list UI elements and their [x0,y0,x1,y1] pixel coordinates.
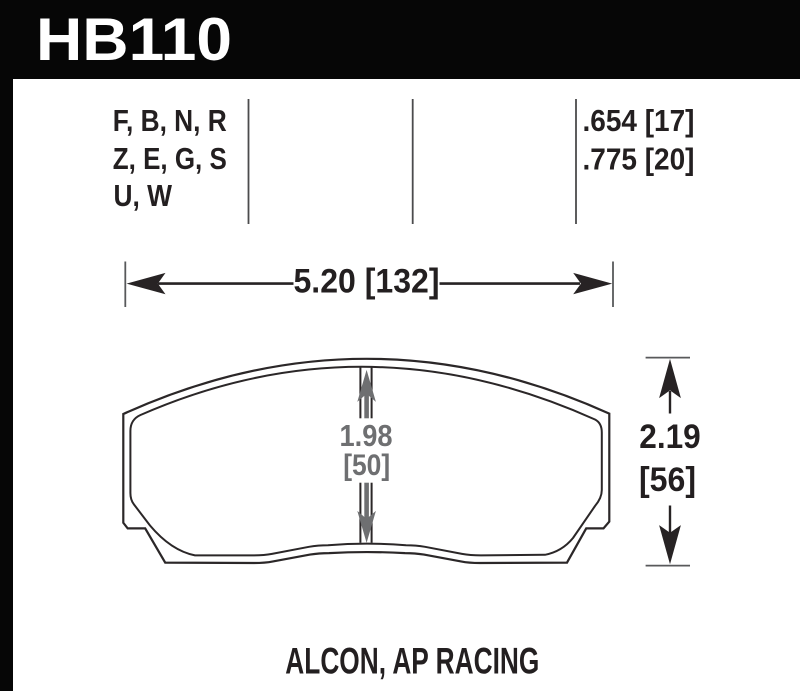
svg-text:HB110: HB110 [36,5,232,73]
svg-text:[56]: [56] [639,461,696,499]
svg-text:F, B, N, R: F, B, N, R [113,104,227,138]
svg-text:1.98: 1.98 [340,419,393,453]
svg-text:[50]: [50] [343,449,390,482]
svg-text:.654 [17]: .654 [17] [583,103,695,138]
svg-text:ALCON, AP RACING: ALCON, AP RACING [285,640,539,682]
svg-text:5.20 [132]: 5.20 [132] [294,263,440,301]
svg-text:2.19: 2.19 [639,418,701,456]
svg-text:Z, E, G, S: Z, E, G, S [113,142,227,176]
svg-text:U, W: U, W [114,179,173,213]
svg-text:.775 [20]: .775 [20] [583,141,695,176]
